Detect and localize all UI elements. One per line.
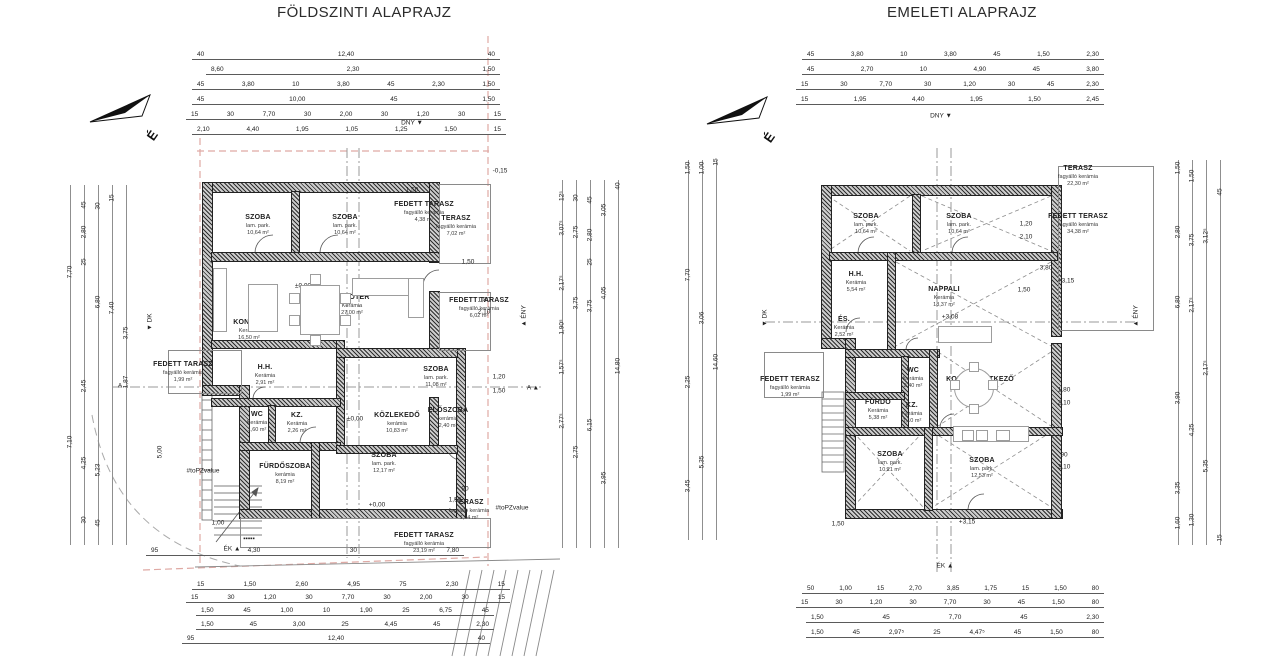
room-area: 1,10 m² <box>902 417 922 424</box>
dimension-value: 3,80 <box>850 51 865 61</box>
dimension-value-vertical: 1,50 <box>1189 170 1196 183</box>
dimension-value: 4,90 <box>972 66 987 76</box>
dimension-value: 3,85 <box>946 585 961 595</box>
room-name: WC <box>903 367 923 376</box>
room-finish: Kerámia <box>834 325 854 332</box>
dimension-value-vertical: 3,06 <box>699 312 706 325</box>
dimension-value-vertical: 14,60 <box>713 354 720 370</box>
dimension-value: 45 <box>1019 614 1028 624</box>
room-label: ÉS.Kerámia2,52 m² <box>834 316 854 339</box>
dimension-value: 10 <box>919 66 928 76</box>
dimension-value: 50 <box>806 585 815 595</box>
room-name: SZOBA <box>946 213 972 222</box>
room-area: 2,52 m² <box>834 331 854 338</box>
wall-segment <box>822 186 831 347</box>
room-finish: lam. park. <box>853 222 879 229</box>
dimension-value: 45 <box>1046 81 1055 91</box>
room-name: FEDETT TERASZ <box>1048 213 1108 222</box>
room-area: 10,64 m² <box>853 228 879 235</box>
dimension-value: 80 <box>1091 599 1100 609</box>
room-finish: Kerámia <box>865 408 891 415</box>
furniture-outline <box>988 380 998 390</box>
dimension-value: 2,30 <box>1085 81 1100 91</box>
annotation-text: 3,80 <box>1040 265 1053 272</box>
dimension-value-vertical: 3,45 <box>685 480 692 493</box>
wall-segment <box>822 186 1061 195</box>
dimension-value-vertical: 3,35 <box>1175 482 1182 495</box>
dimension-value: 1,95 <box>969 96 984 106</box>
dimension-value: 4,40 <box>911 96 926 106</box>
dimension-value-vertical: 15 <box>1217 534 1224 541</box>
dimension-value: 45 <box>1017 599 1026 609</box>
dimension-value: 15 <box>1021 585 1030 595</box>
annotation-text: +3,15 <box>959 519 975 526</box>
dimension-value: 1,50 <box>1049 629 1064 639</box>
dimension-value: 7,70 <box>943 599 958 609</box>
room-finish: fagyálló kerámia <box>1048 222 1108 229</box>
annotation-text: 1,80 <box>1058 387 1071 394</box>
dimension-value: 30 <box>982 599 991 609</box>
dimension-value: 45 <box>806 51 815 61</box>
dimension-value-vertical: 1,50 <box>685 162 692 175</box>
dimension-value-vertical: 4,25 <box>1189 424 1196 437</box>
room-name: SZOBA <box>969 457 995 466</box>
dimension-value: 1,50 <box>810 614 825 624</box>
furniture-outline <box>996 430 1010 441</box>
furniture-outline <box>950 380 960 390</box>
annotation-text: 1,20 <box>1020 221 1033 228</box>
dimension-value: 15 <box>800 96 809 106</box>
room-name: FÜRDŐ <box>865 399 891 408</box>
dimension-value: 2,30 <box>1085 51 1100 61</box>
dimension-value: 3,80 <box>1085 66 1100 76</box>
room-name: SZOBA <box>853 213 879 222</box>
dimension-value: 45 <box>852 629 861 639</box>
floor-plan-drawing-canvas: FÖLDSZINTI ALAPRAJZ EMELETI ALAPRAJZ <box>0 0 1280 658</box>
dimension-value: 7,70 <box>878 81 893 91</box>
dimension-value-vertical: 2,17⁵ <box>1189 297 1196 312</box>
annotation-text: 2,10 <box>1058 464 1071 471</box>
dimension-value: 3,80 <box>943 51 958 61</box>
dimension-value-vertical: 2,25 <box>685 376 692 389</box>
dimension-value-vertical: 1,30 <box>1189 514 1196 527</box>
dimension-chain-line <box>1192 160 1193 545</box>
dimension-value-vertical: 15 <box>713 158 720 165</box>
dimension-value-vertical: 1,00 <box>699 162 706 175</box>
room-finish: Kerámia <box>928 295 960 302</box>
room-label: SZOBAlam. park.12,53 m² <box>969 457 995 480</box>
dimension-row: 453,80103,80451,502,30 <box>806 51 1100 61</box>
wall-segment <box>930 350 937 432</box>
room-finish: fagyálló kerámia <box>1058 174 1098 181</box>
dimension-value: 1,20 <box>962 81 977 91</box>
dimension-value-vertical: 7,70 <box>685 269 692 282</box>
furniture-outline <box>962 430 974 441</box>
room-label: H.H.Kerámia5,54 m² <box>846 271 866 294</box>
room-name: SZOBA <box>877 451 903 460</box>
room-finish: lam. park. <box>969 466 995 473</box>
room-area: 10,21 m² <box>877 466 903 473</box>
dimension-value: 1,75 <box>983 585 998 595</box>
room-name: H.H. <box>846 271 866 280</box>
dimension-value: 15 <box>800 599 809 609</box>
dimension-value-vertical: 6,80 <box>1175 296 1182 309</box>
room-name: TERASZ <box>1058 165 1098 174</box>
furniture-outline <box>969 362 979 372</box>
room-label: NAPPALIKerámia18,37 m² <box>928 286 960 309</box>
dimension-value: 30 <box>923 81 932 91</box>
dimension-value: 2,70 <box>908 585 923 595</box>
dimension-value: 80 <box>1091 629 1100 639</box>
furniture-outline <box>976 430 988 441</box>
room-label: SZOBAlam. park.10,64 m² <box>946 213 972 236</box>
dimension-value: 2,70 <box>860 66 875 76</box>
annotation-text: 2,10 <box>1058 400 1071 407</box>
dimension-value: 2,30 <box>1085 614 1100 624</box>
dimension-value: 45 <box>1013 629 1022 639</box>
wall-segment <box>846 510 1062 518</box>
room-finish: fagyálló kerámia <box>760 385 820 392</box>
furniture-outline <box>938 326 992 343</box>
room-area: 1,99 m² <box>760 391 820 398</box>
wall-segment <box>925 428 932 510</box>
room-area: 5,38 m² <box>865 414 891 421</box>
room-label: WCKerámia2,40 m² <box>903 367 923 390</box>
annotation-text: 1,50 <box>832 521 845 528</box>
dimension-value: 1,50 <box>810 629 825 639</box>
dimension-value: 1,95 <box>853 96 868 106</box>
terrace-outline <box>1058 166 1154 331</box>
dimension-chain-line <box>716 160 717 540</box>
dimension-value: 1,50 <box>1053 585 1068 595</box>
dimension-value: 2,97⁵ <box>888 629 905 639</box>
annotation-text: 1,50 <box>1018 287 1031 294</box>
annotation-text: +3,15 <box>1058 278 1074 285</box>
room-finish: Kerámia <box>902 411 922 418</box>
room-area: 2,40 m² <box>903 382 923 389</box>
room-label: FÜRDŐKerámia5,38 m² <box>865 399 891 422</box>
annotation-text: ▲ ÉNY <box>1133 305 1140 327</box>
annotation-text: ▼ DK <box>762 309 769 326</box>
room-name: KZ. <box>902 402 922 411</box>
dimension-value: 45 <box>992 51 1001 61</box>
dimension-row: 15307,70301,2030452,30 <box>800 81 1100 91</box>
dimension-row: 452,70104,90453,80 <box>806 66 1100 76</box>
dimension-value-vertical: 3,75 <box>1189 234 1196 247</box>
dimension-value: 15 <box>876 585 885 595</box>
dimension-row: 1,50457,70452,30 <box>810 614 1100 624</box>
room-label: SZOBAlam. park.10,21 m² <box>877 451 903 474</box>
dimension-value-vertical: 2,17⁵ <box>1203 360 1210 375</box>
dimension-value-vertical: 5,35 <box>1203 460 1210 473</box>
dimension-value-vertical: 45 <box>1217 188 1224 195</box>
dimension-row: 151,954,401,951,502,45 <box>800 96 1100 106</box>
dimension-chain-line <box>1206 160 1207 545</box>
wall-segment <box>888 253 895 350</box>
dimension-value: 7,70 <box>948 614 963 624</box>
room-area: 12,53 m² <box>969 472 995 479</box>
room-finish: Kerámia <box>903 376 923 383</box>
room-label: TERASZfagyálló kerámia22,30 m² <box>1058 165 1098 188</box>
dimension-value-vertical: 3,90 <box>1175 392 1182 405</box>
room-name: NAPPALI <box>928 286 960 295</box>
room-area: 5,54 m² <box>846 286 866 293</box>
room-area: 34,38 m² <box>1048 228 1108 235</box>
room-label: FEDETT TERASZfagyálló kerámia34,38 m² <box>1048 213 1108 236</box>
annotation-text: ÉK ▲ <box>937 563 954 570</box>
dimension-value: 30 <box>1007 81 1016 91</box>
dimension-row: 15301,20307,7030451,5080 <box>800 599 1100 609</box>
furniture-outline <box>969 404 979 414</box>
dimension-value-vertical: 1,50 <box>1175 162 1182 175</box>
dimension-value: 45 <box>806 66 815 76</box>
dimension-value-vertical: 5,35 <box>699 456 706 469</box>
dimension-value: 45 <box>1032 66 1041 76</box>
dimension-value: 30 <box>839 81 848 91</box>
room-name: ÉS. <box>834 316 854 325</box>
room-area: 18,37 m² <box>928 301 960 308</box>
dimension-value: 45 <box>882 614 891 624</box>
dimension-value: 1,20 <box>869 599 884 609</box>
dimension-value: 4,47⁵ <box>968 629 985 639</box>
annotation-text: DNY ▼ <box>930 113 952 120</box>
room-name: FEDETT TERASZ <box>760 376 820 385</box>
annotation-text: 90 <box>1060 452 1067 459</box>
dimension-value: 15 <box>800 81 809 91</box>
dimension-value-vertical: 1,60 <box>1175 517 1182 530</box>
dimension-value: 1,50 <box>1036 51 1051 61</box>
dimension-value: 10 <box>899 51 908 61</box>
dimension-value-vertical: 2,80 <box>1175 226 1182 239</box>
dimension-row: 501,00152,703,851,75151,5080 <box>806 585 1100 595</box>
annotation-text: +3,08 <box>942 314 958 321</box>
upper-floor-plan: 453,80103,80451,502,30452,70104,90453,80… <box>0 0 1280 658</box>
dimension-value: 80 <box>1091 585 1100 595</box>
wall-segment <box>913 195 920 260</box>
wall-segment <box>830 253 1057 260</box>
dimension-chain-line <box>1220 160 1221 545</box>
room-finish: lam. park. <box>946 222 972 229</box>
dimension-value: 1,00 <box>838 585 853 595</box>
room-label: FEDETT TERASZfagyálló kerámia1,99 m² <box>760 376 820 399</box>
room-finish: Kerámia <box>846 280 866 287</box>
room-label: SZOBAlam. park.10,64 m² <box>853 213 879 236</box>
wall-segment <box>846 350 939 357</box>
room-finish: lam. park. <box>877 460 903 467</box>
room-area: 10,64 m² <box>946 228 972 235</box>
room-area: 22,30 m² <box>1058 180 1098 187</box>
dimension-row: 1,50452,97⁵254,47⁵451,5080 <box>810 629 1100 639</box>
room-label: KZ.Kerámia1,10 m² <box>902 402 922 425</box>
dimension-value: 1,50 <box>1027 96 1042 106</box>
dimension-value: 1,50 <box>1051 599 1066 609</box>
dimension-value: 25 <box>932 629 941 639</box>
annotation-text: 2,10 <box>1020 234 1033 241</box>
dimension-value-vertical: 3,12⁵ <box>1203 228 1210 243</box>
dimension-value: 30 <box>908 599 917 609</box>
dimension-value: 2,45 <box>1085 96 1100 106</box>
dimension-value: 30 <box>834 599 843 609</box>
dimension-chain-line <box>702 160 703 540</box>
